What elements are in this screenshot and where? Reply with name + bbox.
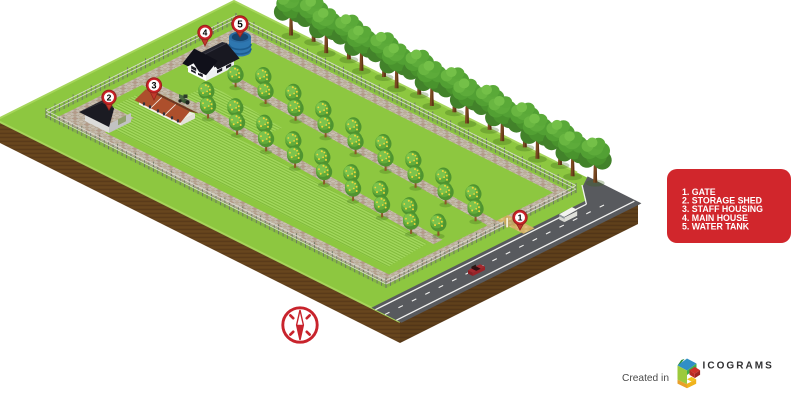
svg-text:4: 4 bbox=[203, 28, 208, 38]
svg-text:5: 5 bbox=[237, 20, 243, 31]
svg-text:2: 2 bbox=[107, 92, 112, 102]
svg-text:3: 3 bbox=[151, 81, 156, 91]
svg-text:ICOGRAMS: ICOGRAMS bbox=[703, 361, 774, 372]
svg-text:1: 1 bbox=[518, 213, 523, 223]
svg-text:5. WATER TANK: 5. WATER TANK bbox=[682, 222, 750, 232]
svg-text:Created in: Created in bbox=[622, 373, 669, 384]
